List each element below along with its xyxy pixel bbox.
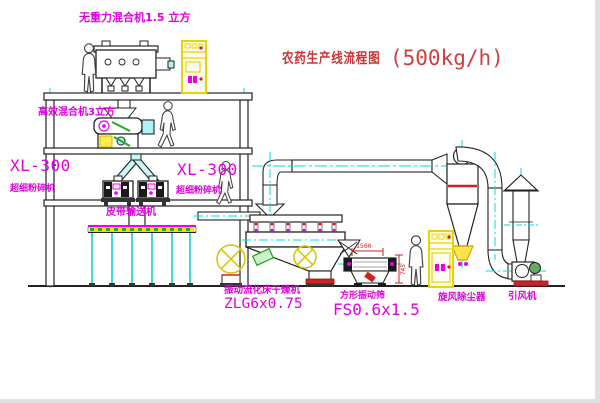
label-gravity-mixer: 无重力混合机1.5 立方 (79, 12, 190, 23)
bucket-elevator (182, 41, 206, 93)
person-figure (409, 236, 423, 285)
title-capacity: (500kg/h) (390, 46, 504, 70)
induced-draft-fan-drawing (512, 262, 548, 286)
belt-conveyor-drawing (88, 206, 196, 286)
exhaust-duct (256, 152, 292, 222)
label-dryer-name: 振动流化床干燥机 (224, 286, 300, 296)
bottom-edge-strip (0, 399, 600, 403)
label-fan: 引风机 (508, 292, 537, 302)
control-cabinet (429, 231, 453, 287)
pulverizer-left-drawing (101, 176, 135, 206)
label-sieve-model: FS0.6x1.5 (333, 302, 420, 318)
drawing-title: 农药生产线流程图 (500kg/h) (282, 46, 504, 70)
label-cyclone: 旋风除尘器 (438, 293, 486, 303)
title-text: 农药生产线流程图 (282, 48, 380, 68)
right-edge-strip (595, 0, 600, 403)
label-pulverizer-center-name: 超细粉碎机 (176, 187, 221, 196)
label-high-efficiency-mixer: 高效混合机3立方 (38, 108, 115, 118)
cad-flowsheet-canvas: 农药生产线流程图 (500kg/h) 无重力混合机1.5 立方 高效混合机3立方… (0, 0, 600, 403)
person-figure (158, 102, 175, 147)
pulverizer-right-drawing (136, 176, 170, 206)
label-belt-conveyor: 皮带输送机 (106, 208, 156, 218)
label-pulverizer-left-name: 超细粉碎机 (10, 185, 55, 194)
fluid-bed-dryer-drawing (217, 215, 350, 287)
gravity-mixer-drawing (88, 41, 174, 116)
label-pulverizer-center-model: XL-300 (177, 162, 238, 178)
label-pulverizer-left-model: XL-300 (10, 158, 71, 174)
dimension-1500: 1500 (356, 243, 372, 250)
dimension-745: 745 (401, 264, 407, 275)
label-dryer-model: ZLG6x0.75 (224, 297, 303, 312)
